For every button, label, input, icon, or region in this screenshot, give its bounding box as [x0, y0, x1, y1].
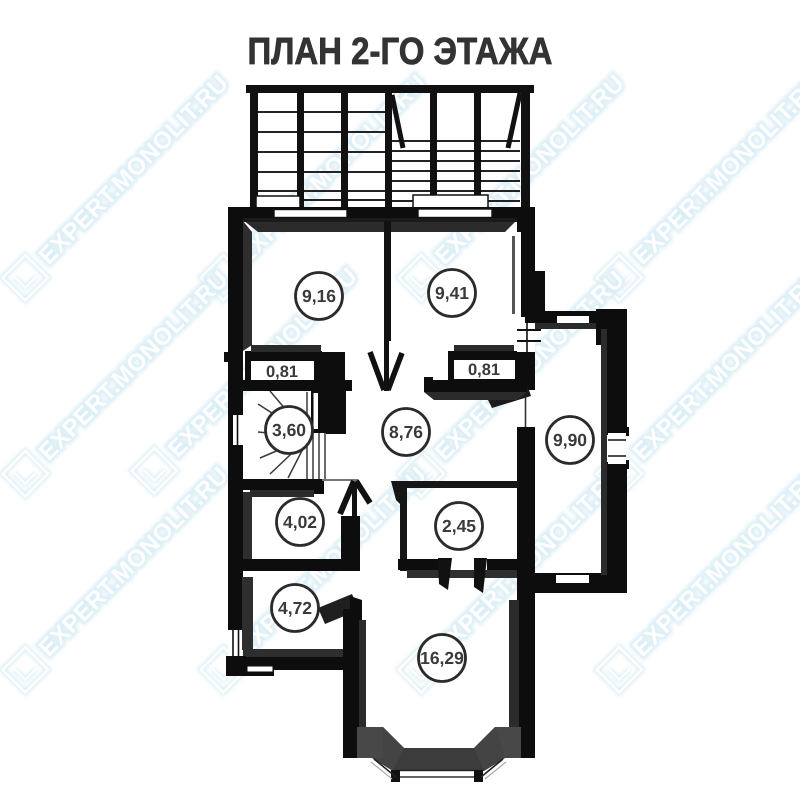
svg-text:3,60: 3,60 — [272, 420, 306, 440]
svg-text:8,76: 8,76 — [389, 422, 423, 442]
svg-text:9,16: 9,16 — [302, 286, 336, 306]
svg-text:9,41: 9,41 — [435, 283, 469, 303]
svg-text:0,81: 0,81 — [468, 361, 500, 379]
svg-text:0,81: 0,81 — [266, 363, 298, 381]
svg-text:2,45: 2,45 — [442, 516, 476, 536]
svg-text:9,90: 9,90 — [553, 430, 587, 450]
svg-text:16,29: 16,29 — [420, 648, 464, 668]
svg-text:4,72: 4,72 — [278, 598, 312, 618]
svg-text:4,02: 4,02 — [283, 512, 317, 532]
svg-text:ПЛАН 2-ГО ЭТАЖА: ПЛАН 2-ГО ЭТАЖА — [248, 31, 553, 73]
